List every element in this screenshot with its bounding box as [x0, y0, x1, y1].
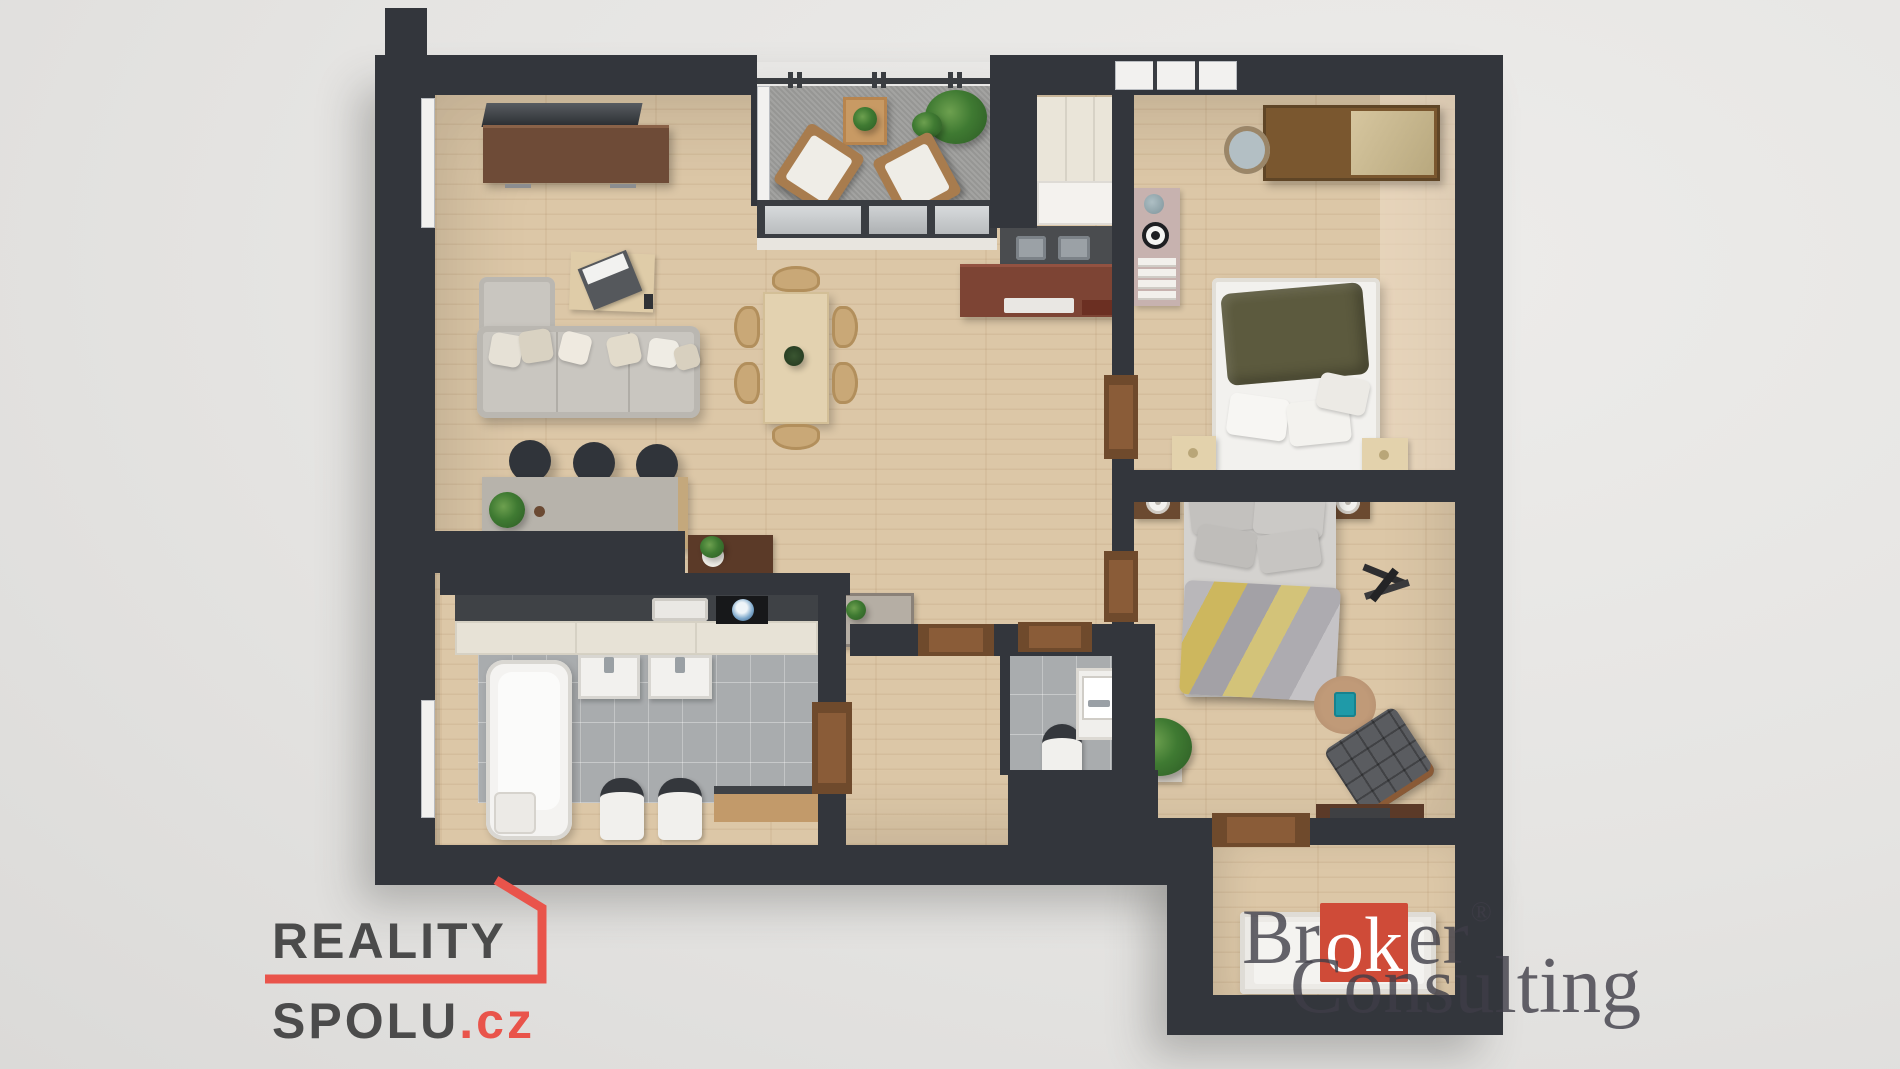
glass-pane — [765, 206, 861, 234]
rocking-chair — [1358, 562, 1412, 608]
shelf-unit — [1134, 188, 1180, 306]
wall-sink — [578, 655, 640, 699]
railing-post — [788, 72, 793, 88]
tv-screen — [481, 103, 642, 127]
bathtub-basin — [498, 672, 560, 810]
bathroom-bench — [714, 786, 818, 822]
cabinet-divider — [1065, 97, 1067, 181]
door-leaf — [818, 713, 846, 783]
vanity-sink — [652, 598, 708, 621]
door-kitchen-bedroom1 — [1104, 375, 1138, 459]
wall-clock — [1142, 222, 1169, 249]
towel-stack — [1138, 269, 1176, 276]
sideboard-foot — [505, 184, 531, 188]
bed-pillow — [1225, 392, 1290, 442]
broker-consulting-logo: Broker® Consulting — [1238, 880, 1668, 1040]
cabinet-divider — [695, 621, 697, 655]
window-left-lower — [421, 700, 435, 818]
console-plant — [700, 536, 724, 558]
window-left-upper — [421, 98, 435, 228]
wall-hall-bedroom2-upper — [1112, 502, 1134, 551]
door-hall-bedroom2 — [1104, 551, 1138, 622]
blanket-olive — [1220, 282, 1369, 386]
door-hall-vestibule — [918, 624, 994, 656]
washing-machine-door — [732, 599, 754, 621]
wall-hall-bedroom1-upper — [1112, 95, 1134, 375]
nightstand-knob — [1188, 448, 1198, 458]
window-mullion — [1153, 61, 1157, 90]
table-plant — [853, 107, 877, 131]
nightstand — [1172, 436, 1216, 470]
registered-mark: ® — [1471, 897, 1492, 928]
consulting-word: Consulting — [1290, 946, 1641, 1026]
railing-post — [948, 72, 953, 88]
wall-bedroom-divider — [1132, 470, 1455, 502]
toilet — [600, 778, 644, 840]
counter-sink — [1004, 298, 1074, 313]
window-mullion — [1195, 61, 1199, 90]
railing-post — [957, 72, 962, 88]
pouf-teal — [1334, 692, 1356, 717]
wc-basin — [1082, 676, 1116, 720]
wall-kitchen-left — [990, 60, 1037, 228]
door-leaf — [929, 628, 982, 652]
wall-bath-right-upper — [818, 573, 846, 703]
island-plant — [489, 492, 525, 528]
door-leaf — [1109, 385, 1133, 449]
wc-faucet — [1088, 700, 1110, 707]
wall-balcony-left-edge — [751, 78, 757, 206]
round-rug-woven — [1224, 126, 1270, 174]
coffee-stool — [509, 440, 551, 482]
railing-post — [797, 72, 802, 88]
bathtub-faucet — [494, 792, 536, 834]
reality-spolu-word: SPOLU — [272, 993, 459, 1049]
dining-chair — [734, 362, 760, 404]
wall-sink — [648, 655, 712, 699]
washing-machine — [716, 596, 768, 624]
wall-wc-left — [1000, 655, 1010, 775]
reality-spolu-line2: SPOLU.cz — [272, 992, 535, 1050]
door-bathroom — [812, 702, 852, 794]
door-sill — [757, 238, 997, 250]
door-bedroom2-nook — [1212, 813, 1310, 847]
glass-pane — [935, 206, 989, 234]
door-wc — [1018, 622, 1092, 652]
railing-post — [872, 72, 877, 88]
sink-faucet — [604, 657, 614, 673]
towel-stack — [1138, 291, 1176, 298]
door-leaf — [1227, 817, 1296, 843]
nightstand — [1362, 438, 1408, 472]
dining-chair — [734, 306, 760, 348]
wall-bedroom2-bottom-left — [1132, 818, 1214, 845]
window-top-bedroom1 — [1115, 61, 1237, 90]
cabinet-divider — [1093, 97, 1095, 181]
sofa-pillow — [518, 328, 555, 365]
railing-post — [881, 72, 886, 88]
wall-bath-top — [440, 573, 850, 595]
kitchen-upper-counter — [1000, 226, 1125, 264]
desk-pad — [1330, 808, 1390, 818]
dining-chair — [772, 424, 820, 450]
wall-top-notch — [385, 8, 427, 58]
door-leaf — [1109, 560, 1133, 614]
dining-chair — [832, 362, 858, 404]
blanket-striped — [1179, 580, 1341, 702]
island-cup — [534, 506, 545, 517]
sideboard-foot — [610, 184, 636, 188]
kitchen-sink-basin — [1016, 236, 1046, 260]
kitchen-tall-cabinets — [1037, 97, 1123, 181]
kitchen-sink-basin — [1058, 236, 1090, 260]
wall-hall-divider-left — [850, 624, 918, 656]
wall-living-bath — [375, 531, 685, 573]
vase — [1144, 194, 1164, 214]
reality-spolu-tld: .cz — [459, 993, 535, 1049]
balcony-sliding-door — [757, 200, 997, 240]
table-centerpiece — [784, 346, 804, 366]
towel-stack — [1138, 280, 1176, 287]
vanity-cabinets — [455, 621, 818, 655]
tv-sideboard — [483, 125, 669, 183]
phone — [644, 294, 653, 309]
wall-bath-right-lower — [818, 792, 846, 845]
sofa-seam — [556, 332, 558, 412]
kitchen-counter-mahogany — [960, 264, 1125, 317]
wall-hall-bedroom1-lower — [1112, 455, 1134, 502]
fridge — [1037, 181, 1123, 225]
balcony-left-return — [757, 86, 770, 204]
dining-chair — [772, 266, 820, 292]
sink-faucet — [675, 657, 685, 673]
reality-spolu-logo: REALITY SPOLU.cz — [250, 868, 590, 1058]
dining-chair — [832, 306, 858, 348]
glass-pane — [869, 206, 927, 234]
bathtub — [486, 660, 572, 840]
wardrobe-mirror-door — [1351, 111, 1434, 175]
wardrobe — [1263, 105, 1440, 181]
wall-top-left — [375, 55, 757, 95]
toilet — [658, 778, 702, 840]
wall-bedroom2-bottom-right — [1310, 818, 1455, 845]
vestibule-plant — [846, 600, 866, 620]
door-leaf — [1029, 626, 1081, 649]
towel-stack — [1138, 258, 1176, 265]
cabinet-divider — [575, 621, 577, 655]
nightstand-knob — [1379, 450, 1389, 460]
